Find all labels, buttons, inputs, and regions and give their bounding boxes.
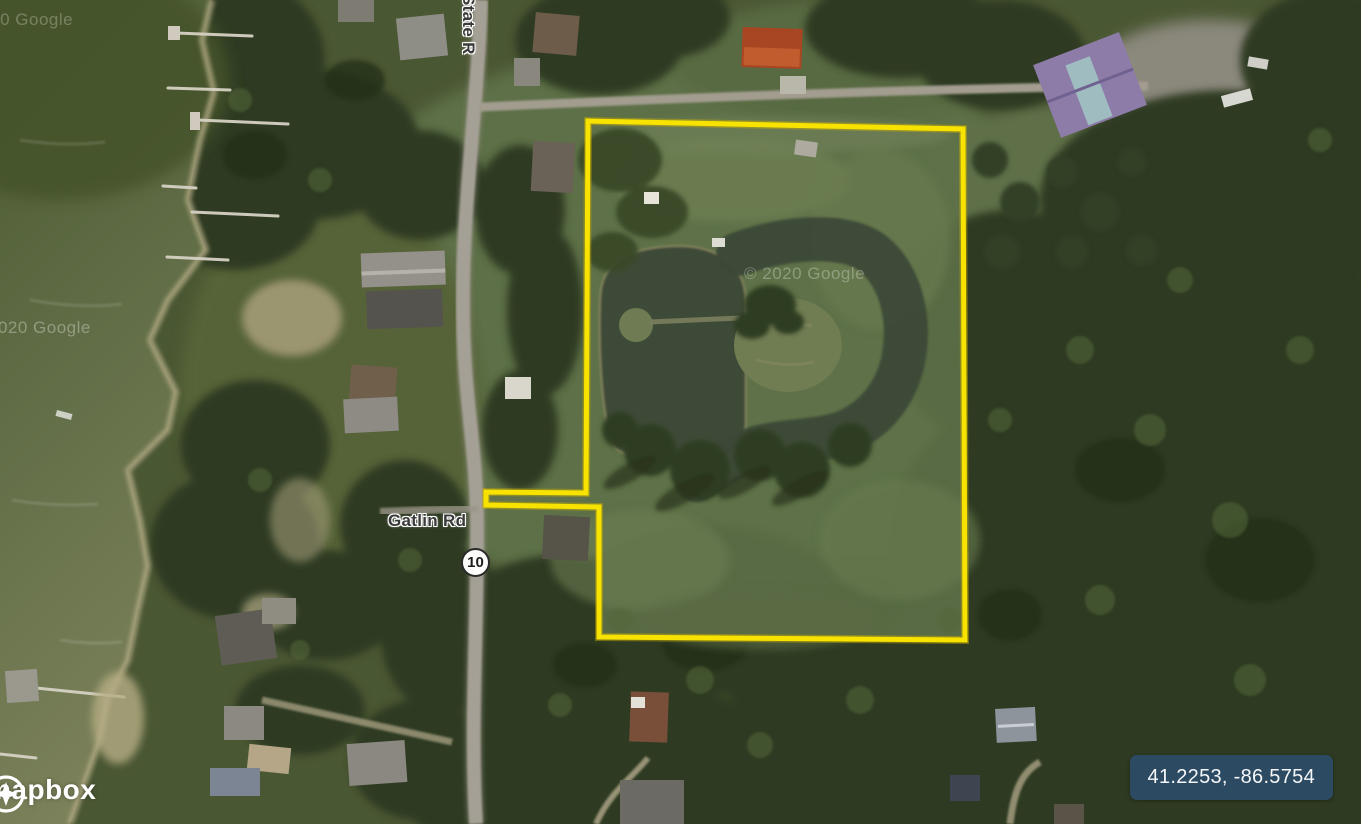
google-watermark-center: © 2020 Google: [744, 264, 865, 284]
satellite-imagery: [0, 0, 1361, 824]
google-watermark-top-left: © 2020 Google: [0, 10, 73, 30]
coordinates-badge: 41.2253, -86.5754: [1130, 755, 1333, 800]
mapbox-logo[interactable]: mapbox: [0, 774, 96, 806]
boathouse: [5, 669, 39, 703]
map-viewport[interactable]: State R Gatlin Rd 10 © 2020 Google 2020 …: [0, 0, 1361, 824]
route-shield-10: 10: [461, 548, 490, 577]
red-roof-building: [741, 27, 802, 69]
mapbox-logo-icon: [0, 774, 26, 814]
road-label-gatlin-rd: Gatlin Rd: [388, 511, 466, 531]
google-watermark-mid-left: 2020 Google: [0, 318, 91, 338]
bottom-right-house: [995, 707, 1037, 743]
road-label-state-rd: State R: [458, 0, 478, 184]
pond-island: [619, 308, 653, 342]
